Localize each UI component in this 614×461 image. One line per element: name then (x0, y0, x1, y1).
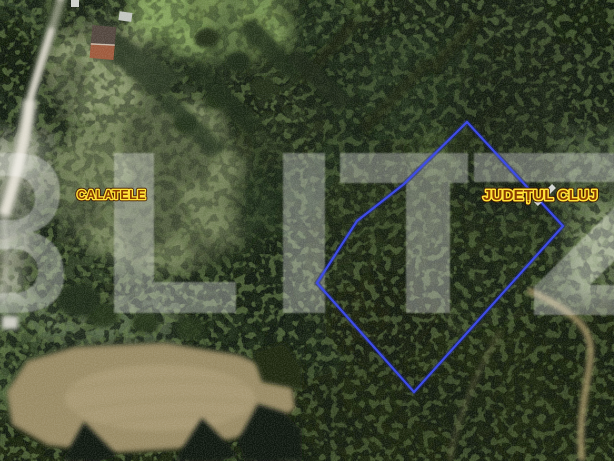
svg-text:JUDEȚUL CLUJ: JUDEȚUL CLUJ (483, 187, 598, 204)
svg-text:CALATELE: CALATELE (77, 188, 146, 202)
